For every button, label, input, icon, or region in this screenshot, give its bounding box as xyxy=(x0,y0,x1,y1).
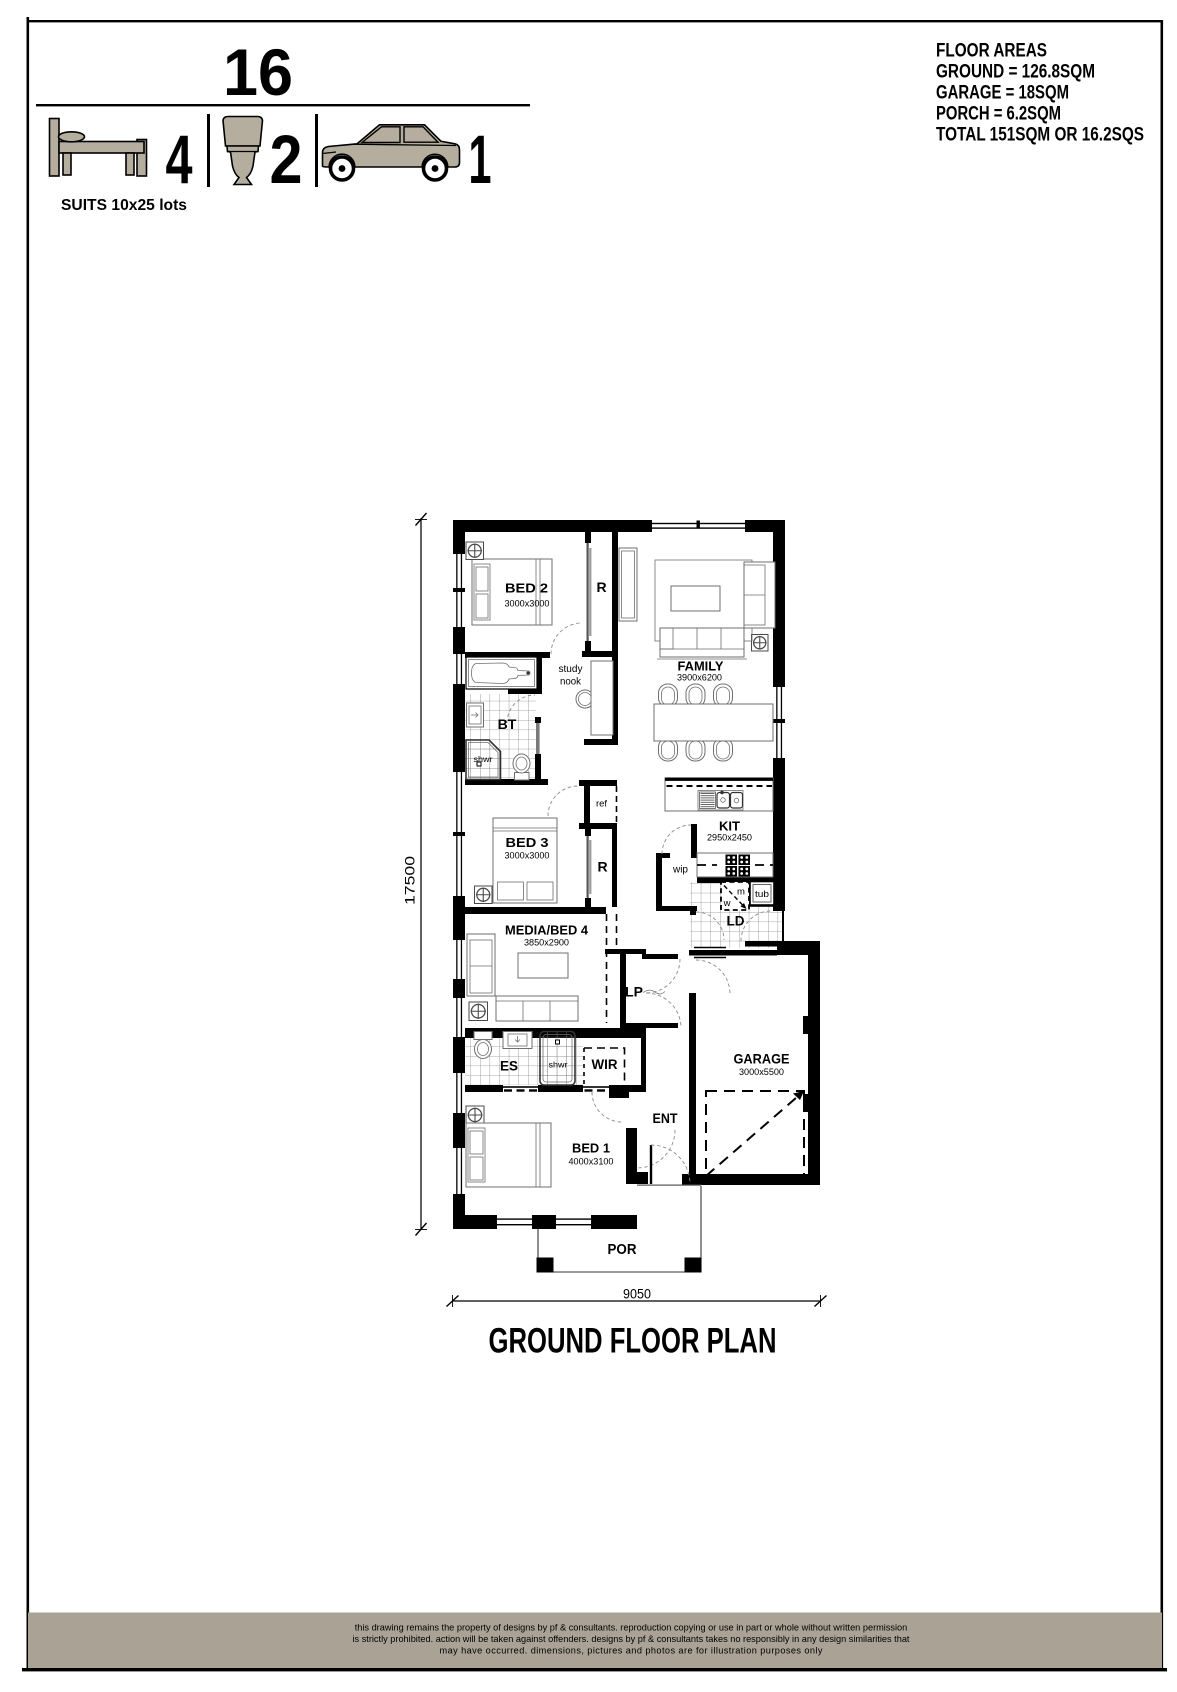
svg-text:GARAGE = 18SQM: GARAGE = 18SQM xyxy=(936,83,1069,104)
svg-text:9050: 9050 xyxy=(623,1287,651,1302)
svg-text:shwr: shwr xyxy=(474,754,493,764)
svg-text:ES: ES xyxy=(500,1059,518,1074)
svg-text:3000x3000: 3000x3000 xyxy=(505,599,550,609)
svg-text:GROUND FLOOR PLAN: GROUND FLOOR PLAN xyxy=(489,1322,777,1361)
svg-text:TOTAL 151SQM OR 16.2SQS: TOTAL 151SQM OR 16.2SQS xyxy=(936,125,1144,146)
svg-text:16: 16 xyxy=(223,35,293,109)
svg-text:LD: LD xyxy=(727,914,745,929)
svg-text:4000x3100: 4000x3100 xyxy=(569,1157,614,1167)
svg-text:nook: nook xyxy=(560,677,582,688)
svg-text:ref: ref xyxy=(596,799,607,810)
svg-text:tub: tub xyxy=(755,889,769,899)
svg-text:study: study xyxy=(559,664,583,675)
svg-text:3850x2900: 3850x2900 xyxy=(524,938,569,948)
svg-text:BED 2: BED 2 xyxy=(505,581,548,596)
svg-text:BT: BT xyxy=(498,716,517,732)
svg-text:2: 2 xyxy=(270,121,303,198)
svg-text:PORCH = 6.2SQM: PORCH = 6.2SQM xyxy=(936,104,1061,125)
svg-text:BED 3: BED 3 xyxy=(506,835,549,850)
svg-text:SUITS 10x25 lots: SUITS 10x25 lots xyxy=(61,197,187,214)
svg-text:2950x2450: 2950x2450 xyxy=(707,833,752,843)
svg-text:GROUND = 126.8SQM: GROUND = 126.8SQM xyxy=(936,62,1095,83)
svg-text:FLOOR AREAS: FLOOR AREAS xyxy=(936,41,1047,62)
svg-text:may have occurred. dimensions,: may have occurred. dimensions, pictures … xyxy=(440,1646,823,1656)
svg-text:3000x3000: 3000x3000 xyxy=(505,851,550,861)
svg-text:m: m xyxy=(737,887,745,898)
svg-text:R: R xyxy=(597,859,607,875)
svg-text:KIT: KIT xyxy=(719,819,740,834)
svg-text:is strictly prohibited. action: is strictly prohibited. action will be t… xyxy=(353,1634,910,1644)
svg-text:BED 1: BED 1 xyxy=(572,1141,610,1156)
svg-text:shwr: shwr xyxy=(549,1060,568,1070)
svg-text:this drawing remains the prope: this drawing remains the property of des… xyxy=(355,1623,908,1633)
svg-text:3900x6200: 3900x6200 xyxy=(677,673,722,683)
svg-text:w: w xyxy=(723,898,731,909)
svg-text:POR: POR xyxy=(608,1242,637,1258)
svg-text:wip: wip xyxy=(672,865,688,876)
svg-text:1: 1 xyxy=(469,121,492,198)
svg-text:FAMILY: FAMILY xyxy=(678,659,724,674)
svg-text:R: R xyxy=(596,579,606,595)
svg-text:4: 4 xyxy=(166,121,193,198)
svg-text:MEDIA/BED 4: MEDIA/BED 4 xyxy=(505,923,589,938)
svg-text:17500: 17500 xyxy=(403,856,418,905)
svg-text:3000x5500: 3000x5500 xyxy=(739,1067,784,1077)
svg-text:WIR: WIR xyxy=(592,1057,618,1072)
svg-text:GARAGE: GARAGE xyxy=(734,1051,790,1067)
svg-text:ENT: ENT xyxy=(653,1111,679,1126)
svg-text:LP: LP xyxy=(625,984,643,1000)
